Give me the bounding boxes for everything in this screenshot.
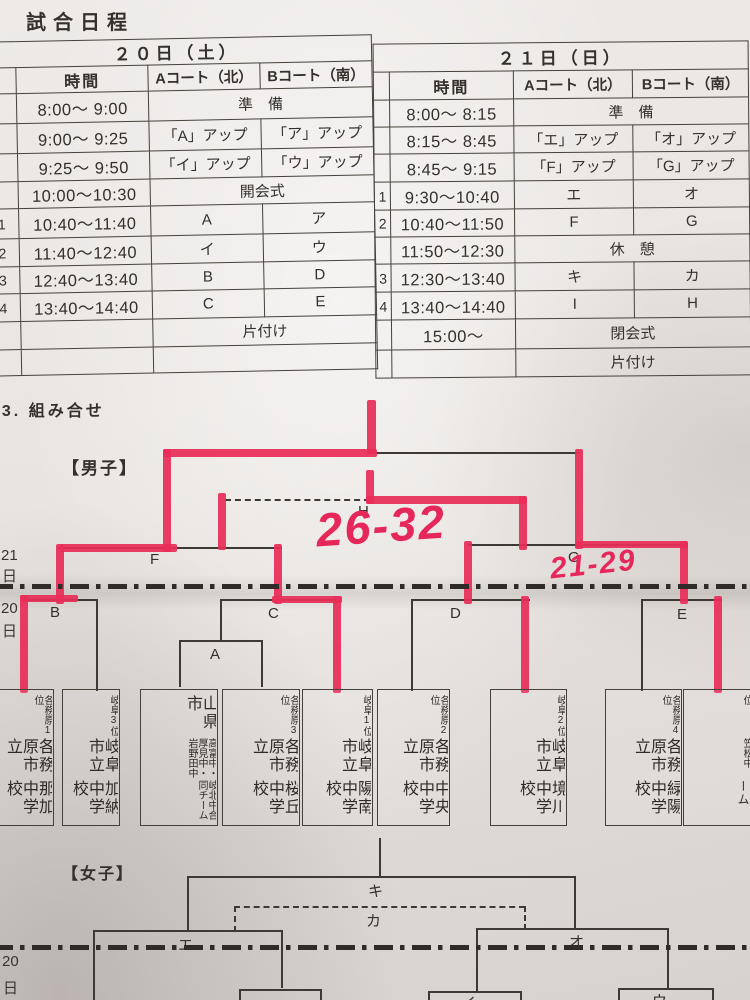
bracket-line xyxy=(239,989,322,991)
page-title: 試合日程 xyxy=(26,6,134,35)
schedule-cell xyxy=(374,127,390,154)
schedule-row: 413:40～14:40IH xyxy=(375,289,750,320)
schedule-cell: 「A」アップ xyxy=(149,119,262,151)
schedule-cell: 15:00～ xyxy=(392,319,516,350)
schedule-cell: 11:50～12:30 xyxy=(391,236,515,264)
marker-line xyxy=(274,544,282,604)
schedule-row: 11:50～12:30休 憩 xyxy=(375,234,750,264)
schedule-cell: 4 xyxy=(0,294,21,323)
schedule-cell xyxy=(0,124,17,155)
bracket-line xyxy=(187,876,189,932)
marker-line xyxy=(714,596,722,693)
marker-line xyxy=(60,544,177,552)
marker-line xyxy=(333,596,341,693)
schedule-cell: 開会式 xyxy=(150,175,374,206)
womens-bracket-label: 【女子】 xyxy=(62,860,134,884)
schedule-cell: エ xyxy=(514,180,634,209)
mens-bracket-label: 【男子】 xyxy=(62,454,138,479)
team-name-column: 緑陽中学校 xyxy=(607,780,680,823)
team-name-column: 各務原市立 xyxy=(379,738,448,781)
team-box-yamagata-joint: 山県市高富中・厚見中・岩野田中岐北中合同チーム xyxy=(140,689,218,826)
schedule-cell xyxy=(376,350,392,378)
schedule-cell: オ xyxy=(634,179,750,208)
marker-line xyxy=(367,400,376,454)
margin-day-20-bottom-kanji: 日 xyxy=(3,977,18,998)
schedule-cell xyxy=(0,94,17,125)
schedule-cell xyxy=(21,347,153,376)
bracket-line xyxy=(187,876,576,878)
schedule-cell: 「エ」アップ xyxy=(513,125,633,153)
schedule-cell: I xyxy=(515,290,635,319)
marker-line xyxy=(272,596,342,603)
schedule-table: ２０日（土）時間Aコート（北）Bコート（南）8:00～ 9:00準 備9:00～… xyxy=(0,34,378,376)
bracket-line xyxy=(641,599,643,691)
schedule-cell: 「イ」アップ xyxy=(149,149,262,179)
schedule-cell: 11:40～12:40 xyxy=(19,236,152,267)
schedule-cell: 2 xyxy=(374,210,390,237)
bracket-line xyxy=(574,876,576,930)
team-name-column: 各務原市立 xyxy=(224,738,298,781)
match-label-f: F xyxy=(150,551,159,568)
team-name-column: 岐北中合同チーム xyxy=(142,780,216,823)
team-name-column: 岐阜市立 xyxy=(492,738,565,781)
team-name-column: 高富中・厚見中・岩野田中 xyxy=(142,738,216,781)
bracket-line xyxy=(261,640,263,687)
schedule-cell xyxy=(375,320,391,350)
schedule-cell: 「G」アップ xyxy=(633,151,749,180)
schedule-table-saturday: ２０日（土）時間Aコート（北）Bコート（南）8:00～ 9:00準 備9:00～… xyxy=(0,34,378,376)
schedule-row: 312:30～13:40キカ xyxy=(375,261,750,292)
schedule-cell: 4 xyxy=(375,292,391,320)
bracket-line xyxy=(379,838,381,878)
column-header-time: 時間 xyxy=(389,71,513,100)
marker-line xyxy=(20,595,78,602)
schedule-cell xyxy=(392,349,516,378)
team-name-column: 境川中学校 xyxy=(492,780,565,823)
bracket-line xyxy=(320,989,322,1000)
schedule-row: 210:40～11:50FG xyxy=(374,207,749,237)
schedule-cell xyxy=(0,68,16,95)
schedule-cell: 片付け xyxy=(153,315,377,347)
team-name-column: 陽南中学校 xyxy=(304,780,371,823)
schedule-cell xyxy=(0,350,22,377)
schedule-cell: 準 備 xyxy=(148,87,373,121)
bracket-line xyxy=(667,928,669,989)
schedule-cell: 3 xyxy=(375,264,391,292)
team-box-chuo: 各務原2位各務原市立中央中学校 xyxy=(377,689,450,826)
schedule-cell: キ xyxy=(515,262,635,291)
schedule-cell: H xyxy=(635,289,750,318)
column-header-court-a: Aコート（北） xyxy=(148,63,260,91)
schedule-cell: 片付け xyxy=(515,347,750,377)
bracket-dashed-line xyxy=(524,906,526,930)
schedule-cell xyxy=(0,154,18,183)
match-label-e: E xyxy=(677,606,687,623)
match-label-e-womens: エ xyxy=(178,934,193,955)
team-name-column: 各務原市立 xyxy=(0,738,52,781)
schedule-cell: 10:00～10:30 xyxy=(18,179,150,209)
schedule-cell: C xyxy=(152,289,265,319)
schedule-cell: 10:40～11:50 xyxy=(391,209,515,237)
schedule-cell: 13:40～14:40 xyxy=(20,291,153,322)
team-name-column: 岐阜市立 xyxy=(64,738,118,781)
schedule-cell: 9:30～10:40 xyxy=(390,181,514,210)
schedule-cell xyxy=(0,322,21,351)
handwritten-score-final: 26-32 xyxy=(314,494,448,558)
schedule-row: 19:30～10:40エオ xyxy=(374,179,749,210)
team-box-sakuragaoka: 各務原3位各務原市立桜丘中学校 xyxy=(222,689,300,826)
margin-day-20: 20 xyxy=(1,600,18,617)
team-box-naka: 各務原1位各務原市立那加中学校 xyxy=(0,689,54,826)
bracket-line xyxy=(428,991,430,1000)
bracket-line xyxy=(712,988,714,1000)
margin-day-21-kanji: 日 xyxy=(2,565,17,586)
schedule-cell: 1 xyxy=(374,182,390,210)
handwritten-score-semifinal: 21-29 xyxy=(548,544,638,587)
bracket-line xyxy=(411,599,413,691)
bracket-line xyxy=(373,452,580,454)
bracket-line xyxy=(96,599,98,691)
schedule-cell: 9:25～ 9:50 xyxy=(17,151,150,182)
team-name-column: 山県市 xyxy=(142,695,216,738)
day-title: ２１日（日） xyxy=(373,41,748,72)
schedule-cell: 8:15～ 8:45 xyxy=(390,126,514,154)
schedule-cell: 「オ」アップ xyxy=(633,124,749,152)
schedule-cell: A xyxy=(151,204,264,236)
team-name-column: 桜丘中学校 xyxy=(224,780,298,823)
column-header-court-b: Bコート（南） xyxy=(260,61,372,89)
team-name-column: 各務原3位 xyxy=(224,695,298,738)
team-name-column: 加納中学校 xyxy=(64,780,118,823)
bracket-dashed-line xyxy=(234,906,236,932)
schedule-cell: 9:00～ 9:25 xyxy=(17,121,150,154)
match-label-i-womens: イ xyxy=(461,992,476,1000)
marker-line xyxy=(575,449,583,549)
schedule-cell: 8:00～ 9:00 xyxy=(16,91,149,124)
bracket-line xyxy=(239,989,241,1000)
team-name-column: 各務原市立 xyxy=(607,738,680,781)
match-label-o-womens: オ xyxy=(569,931,584,952)
bracket-line xyxy=(93,930,283,932)
team-name-column: 羽島B1位 xyxy=(685,695,750,738)
schedule-cell xyxy=(373,72,389,100)
schedule-row: 8:00～ 8:15準 備 xyxy=(374,97,749,127)
schedule-cell: G xyxy=(634,207,750,235)
team-name-column: 那加中学校 xyxy=(0,780,52,823)
marker-line xyxy=(163,449,171,552)
schedule-cell xyxy=(153,343,377,373)
marker-line xyxy=(519,496,527,550)
match-label-u-womens: ウ xyxy=(652,990,667,1000)
team-name-column: 合同チーム xyxy=(685,780,750,823)
marker-line xyxy=(464,541,472,604)
bracket-line xyxy=(281,930,283,988)
schedule-cell: ウ xyxy=(263,232,376,262)
team-name-column: 岐阜1位 xyxy=(304,695,371,738)
bracket-dashed-line xyxy=(234,906,525,908)
margin-day-21: 21 xyxy=(1,547,18,564)
team-box-sakaigawa: 岐阜2位岐阜市立境川中学校 xyxy=(490,689,567,826)
schedule-cell: E xyxy=(264,287,377,317)
schedule-row: 8:45～ 9:15「F」アップ「G」アップ xyxy=(374,151,749,182)
match-label-c: C xyxy=(268,605,279,622)
column-header-court-a: Aコート（北） xyxy=(513,70,633,99)
section-heading: 13. 組み合せ xyxy=(0,397,105,421)
paper-schedule-photo: 試合日程 ２０日（土）時間Aコート（北）Bコート（南）8:00～ 9:00準 備… xyxy=(0,0,750,1000)
match-label-ka: カ xyxy=(366,910,381,931)
marker-line xyxy=(218,493,226,550)
schedule-table-sunday: ２１日（日）時間Aコート（北）Bコート（南）8:00～ 8:15準 備8:15～… xyxy=(373,40,750,378)
match-label-b: B xyxy=(50,604,60,621)
bracket-line xyxy=(476,928,478,992)
day-divider-line-mens xyxy=(0,584,750,589)
bracket-line xyxy=(93,930,95,1000)
bracket-line xyxy=(476,928,669,930)
team-name-column: 岐阜2位 xyxy=(492,695,565,738)
marker-line xyxy=(20,595,28,693)
bracket-line xyxy=(520,991,522,1000)
schedule-cell: 「F」アップ xyxy=(514,152,634,181)
day-divider-line-womens xyxy=(0,945,750,950)
schedule-cell: 閉会式 xyxy=(515,317,750,349)
team-name-column: 各務原1位 xyxy=(0,695,52,738)
team-box-ryokuyo: 各務原4位各務原市立緑陽中学校 xyxy=(605,689,682,826)
team-name-column: 中央中学校 xyxy=(379,780,448,823)
bracket-line xyxy=(220,599,222,642)
team-name-column: 各務原2位 xyxy=(379,695,448,738)
schedule-cell xyxy=(374,100,390,127)
schedule-cell: B xyxy=(152,262,264,291)
team-name-column: 各務原4位 xyxy=(607,695,680,738)
schedule-cell: F xyxy=(514,208,634,236)
team-box-kano: 岐阜3位岐阜市立加納中学校 xyxy=(62,689,120,826)
schedule-cell xyxy=(375,237,391,264)
schedule-table: ２１日（日）時間Aコート（北）Bコート（南）8:00～ 8:15準 備8:15～… xyxy=(373,40,750,378)
marker-line xyxy=(163,449,377,457)
schedule-cell xyxy=(0,182,19,210)
schedule-cell: 準 備 xyxy=(513,97,749,126)
schedule-cell: 12:30～13:40 xyxy=(391,263,515,292)
match-label-a: A xyxy=(210,646,220,663)
marker-line xyxy=(680,541,688,604)
team-name-column: 羽島中・笠松中 xyxy=(685,738,750,781)
schedule-cell: D xyxy=(264,260,376,289)
schedule-cell: 「ウ」アップ xyxy=(261,147,374,177)
schedule-row: 15:00～閉会式 xyxy=(375,317,750,350)
schedule-row: 片付け xyxy=(376,347,750,378)
schedule-cell xyxy=(374,154,390,182)
margin-day-20-bottom: 20 xyxy=(2,953,19,970)
schedule-cell: カ xyxy=(634,261,750,290)
column-header-court-b: Bコート（南） xyxy=(633,69,749,98)
match-label-d: D xyxy=(450,605,461,622)
schedule-cell: イ xyxy=(151,234,264,264)
schedule-cell: ア xyxy=(262,202,375,234)
schedule-cell: 10:40～11:40 xyxy=(19,206,152,239)
schedule-cell: 3 xyxy=(0,267,20,295)
schedule-cell: 12:40～13:40 xyxy=(20,264,152,294)
schedule-cell: 「ア」アップ xyxy=(261,117,374,149)
bracket-line xyxy=(618,988,620,1000)
margin-day-20-kanji: 日 xyxy=(2,620,17,641)
schedule-cell: 1 xyxy=(0,209,19,240)
column-header-time: 時間 xyxy=(16,65,148,94)
schedule-cell: 8:45～ 9:15 xyxy=(390,153,514,182)
bracket-line xyxy=(179,640,181,687)
schedule-cell: 2 xyxy=(0,239,20,268)
schedule-cell: 13:40～14:40 xyxy=(391,291,515,320)
team-box-hashima-joint: 羽島B1位羽島中・笠松中合同チーム xyxy=(683,689,750,826)
team-name-column: 岐阜3位 xyxy=(64,695,118,738)
team-box-yonan: 岐阜1位岐阜市立陽南中学校 xyxy=(302,689,373,826)
match-label-ki: キ xyxy=(368,880,383,901)
schedule-cell: 休 憩 xyxy=(514,234,750,263)
schedule-cell xyxy=(21,319,154,350)
schedule-row: 8:15～ 8:45「エ」アップ「オ」アップ xyxy=(374,124,749,154)
schedule-cell: 8:00～ 8:15 xyxy=(390,99,514,127)
marker-line xyxy=(521,596,529,693)
team-name-column: 岐阜市立 xyxy=(304,738,371,781)
